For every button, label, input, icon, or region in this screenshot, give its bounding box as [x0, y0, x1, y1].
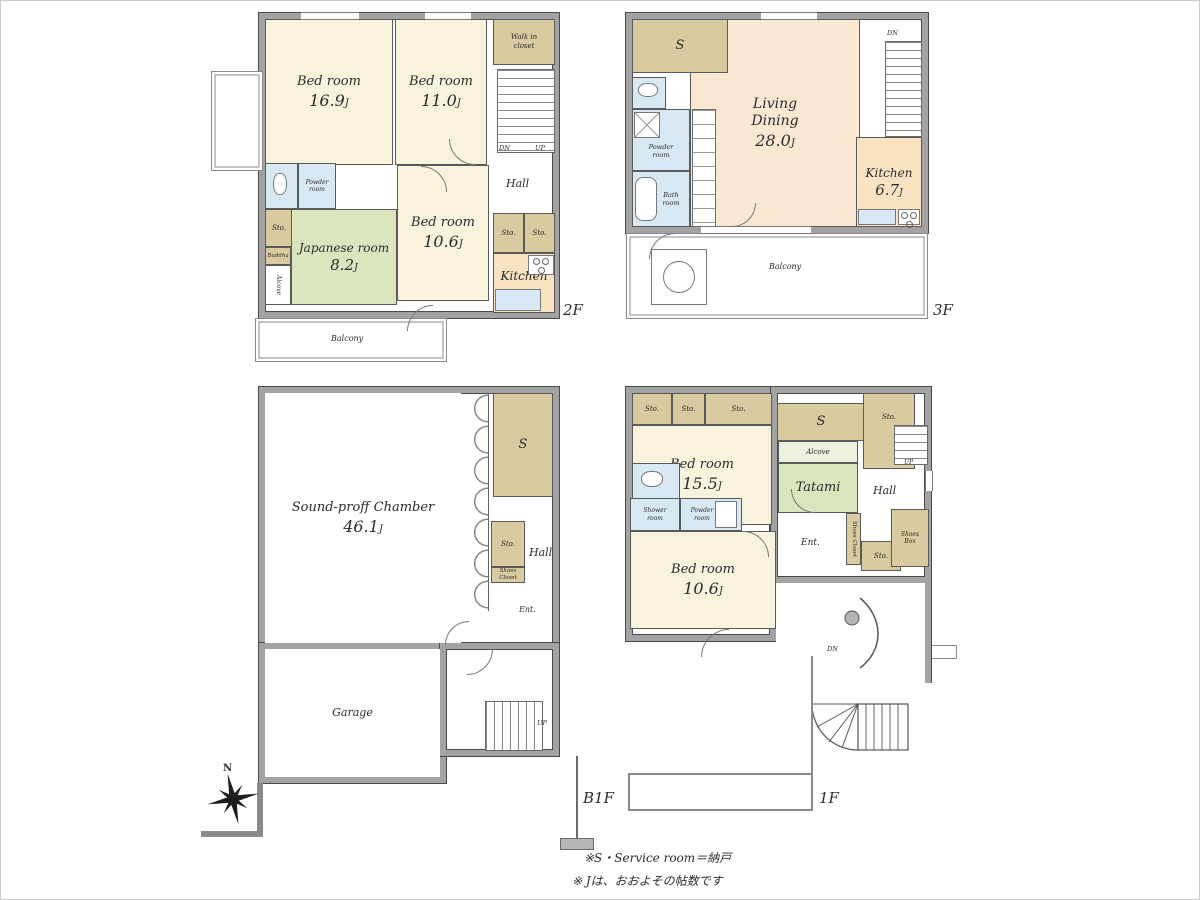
stove-icon — [898, 209, 920, 225]
window — [425, 12, 471, 20]
room-2f-buddha: Buddha — [265, 247, 291, 265]
room-1f-service: S — [777, 403, 865, 441]
b1f-hall-label: Hall — [529, 546, 552, 559]
room-name: Sto. — [882, 413, 896, 422]
room-name: Sound-proff Chamber — [292, 500, 435, 516]
room-name: Sto. — [732, 405, 746, 414]
room-name: Sto. — [502, 229, 516, 238]
room-2f-storage3: Sto. — [524, 213, 555, 253]
room-1f-shower: Shower room — [630, 498, 680, 531]
3f-balcony-label: Balcony — [769, 262, 801, 271]
window — [761, 12, 817, 20]
3f-closet-shelves — [692, 109, 716, 227]
3f-stairs — [885, 41, 922, 137]
2f-balcony-label: Balcony — [331, 334, 363, 343]
room-name: Bed room — [409, 74, 473, 90]
2f-floor-label: 2F — [563, 301, 583, 319]
room-name: Shoes Closet — [492, 568, 524, 582]
room-name: Alcove — [274, 275, 282, 295]
approach-line — [628, 773, 630, 811]
room-b1f-chamber: Sound-proff Chamber 46.1J — [265, 393, 461, 643]
2f-stairs — [497, 69, 555, 153]
window — [925, 471, 933, 491]
room-name: Bed room — [411, 215, 475, 231]
1f-hall-label: Hall — [873, 484, 896, 497]
1f-ent-label: Ent. — [801, 538, 820, 548]
room-name: Sto. — [682, 405, 696, 414]
room-area: 6.7J — [875, 181, 903, 199]
room-name: Shoes Box — [901, 531, 919, 546]
2f-stairs-dn-label: DN — [499, 144, 510, 152]
room-area: 46.1J — [343, 517, 383, 536]
room-1f-shoes-box: Shoes Box — [891, 509, 929, 567]
1f-outdoor-stairs — [776, 576, 956, 776]
b1f-soundproof-doors — [459, 393, 489, 611]
1f-stairs-dn-label: DN — [827, 645, 838, 653]
room-name: Bath room — [662, 191, 679, 207]
room-name: Japanese room — [299, 241, 389, 256]
3f-sink-counter — [858, 209, 896, 225]
room-name: Sto. — [501, 540, 515, 549]
room-1f-storage3: Sto. — [705, 393, 772, 425]
room-name: Powder room — [691, 507, 714, 522]
stove-icon — [528, 255, 554, 275]
room-name: Sto. — [874, 552, 888, 561]
window — [701, 226, 811, 234]
gate-leader-line — [576, 756, 578, 840]
room-name: Kitchen — [866, 166, 913, 181]
room-name: S — [676, 38, 685, 54]
room-name: Shoes Closet — [850, 521, 857, 557]
room-2f-powder: Powder room — [298, 163, 336, 209]
room-area: 11.0J — [421, 91, 461, 110]
room-name: Sto. — [533, 229, 547, 238]
approach-line — [628, 773, 812, 775]
window — [301, 12, 359, 20]
room-area: 16.9J — [309, 91, 349, 110]
b1f-floor-label: B1F — [583, 789, 614, 807]
room-name: Bed room — [297, 74, 361, 90]
b1f-stairs — [485, 701, 543, 751]
room-b1f-garage: Garage — [265, 649, 440, 777]
bathtub-icon — [635, 177, 657, 221]
room-name: Buddha — [267, 253, 288, 260]
2f-sink-counter — [495, 289, 541, 311]
room-name: Powder room — [306, 179, 329, 194]
2f-hall-label: Hall — [506, 177, 529, 190]
room-name: Alcove — [806, 448, 830, 457]
toilet-icon — [273, 173, 287, 195]
room-name: S — [519, 437, 528, 453]
room-b1f-shoes-closet: Shoes Closet — [491, 567, 525, 583]
3f-floor-label: 3F — [933, 301, 953, 319]
2f-side-bay — [211, 71, 263, 171]
note-tatami-count: ※ Jは、おおよその帖数です — [572, 872, 723, 889]
toilet-icon — [638, 83, 658, 97]
1f-stairs-up-label: UP — [904, 459, 913, 466]
b1f-stairs-up-label: UP — [537, 719, 547, 727]
room-3f-service: S — [632, 19, 728, 73]
room-b1f-service: S — [493, 393, 553, 497]
room-2f-alcove: Alcove — [265, 265, 291, 305]
room-name: Sto. — [272, 224, 286, 233]
room-2f-japanese: Japanese room 8.2J — [291, 209, 397, 305]
room-1f-storage2: Sto. — [672, 393, 705, 425]
1f-floor-label: 1F — [819, 789, 839, 807]
room-name: S — [817, 414, 826, 430]
note-service-room: ※S・Service room＝納戸 — [584, 849, 731, 866]
room-name: Shower room — [643, 507, 666, 522]
room-area: 10.6J — [423, 232, 463, 251]
room-area: 8.2J — [330, 256, 358, 274]
gate-marker — [561, 839, 593, 849]
toilet-icon — [641, 471, 663, 487]
washer-icon — [634, 112, 660, 138]
room-area: 10.6J — [683, 579, 723, 598]
room-1f-storage1: Sto. — [632, 393, 672, 425]
room-1f-shoes-closet: Shoes Closet — [846, 513, 861, 565]
approach-line — [811, 656, 813, 811]
3f-balcony-tub-circle — [663, 261, 695, 293]
room-2f-storage2: Sto. — [493, 213, 524, 253]
room-area: 28.0J — [755, 131, 795, 150]
room-name: Powder room — [649, 143, 674, 159]
room-name: Garage — [332, 706, 373, 720]
room-b1f-storage: Sto. — [491, 521, 525, 567]
room-1f-alcove: Alcove — [778, 441, 858, 463]
room-1f-tatami: Tatami — [778, 463, 858, 513]
room-name: Sto. — [645, 405, 659, 414]
b1f-ent-label: Ent. — [519, 605, 536, 614]
compass-north-label: N — [223, 763, 232, 774]
sink-icon — [715, 501, 737, 528]
driveway-wall — [201, 831, 263, 837]
room-name: Walk in closet — [511, 33, 537, 51]
2f-stairs-up-label: UP — [535, 144, 545, 152]
floor-plan-sheet: Bed room 16.9J Bed room 11.0J Walk in cl… — [0, 0, 1200, 900]
approach-line — [628, 809, 812, 811]
room-2f-bedroom-16: Bed room 16.9J — [265, 19, 393, 165]
room-area: 15.5J — [682, 474, 722, 493]
room-2f-storage1: Sto. — [265, 209, 293, 247]
room-name: Bed room — [671, 562, 735, 578]
room-name: Living Dining — [751, 96, 798, 131]
3f-stairs-dn-label: DN — [887, 29, 898, 37]
room-2f-walkin-closet: Walk in closet — [493, 19, 555, 65]
